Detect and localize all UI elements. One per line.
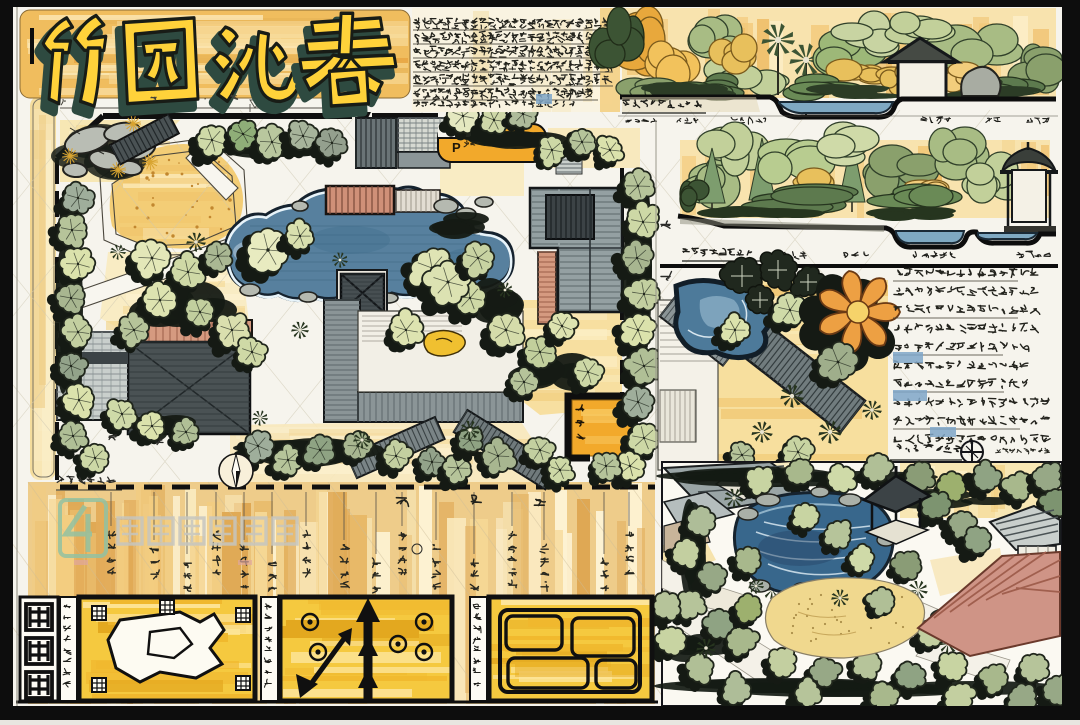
svg-text:P: P — [452, 140, 461, 155]
